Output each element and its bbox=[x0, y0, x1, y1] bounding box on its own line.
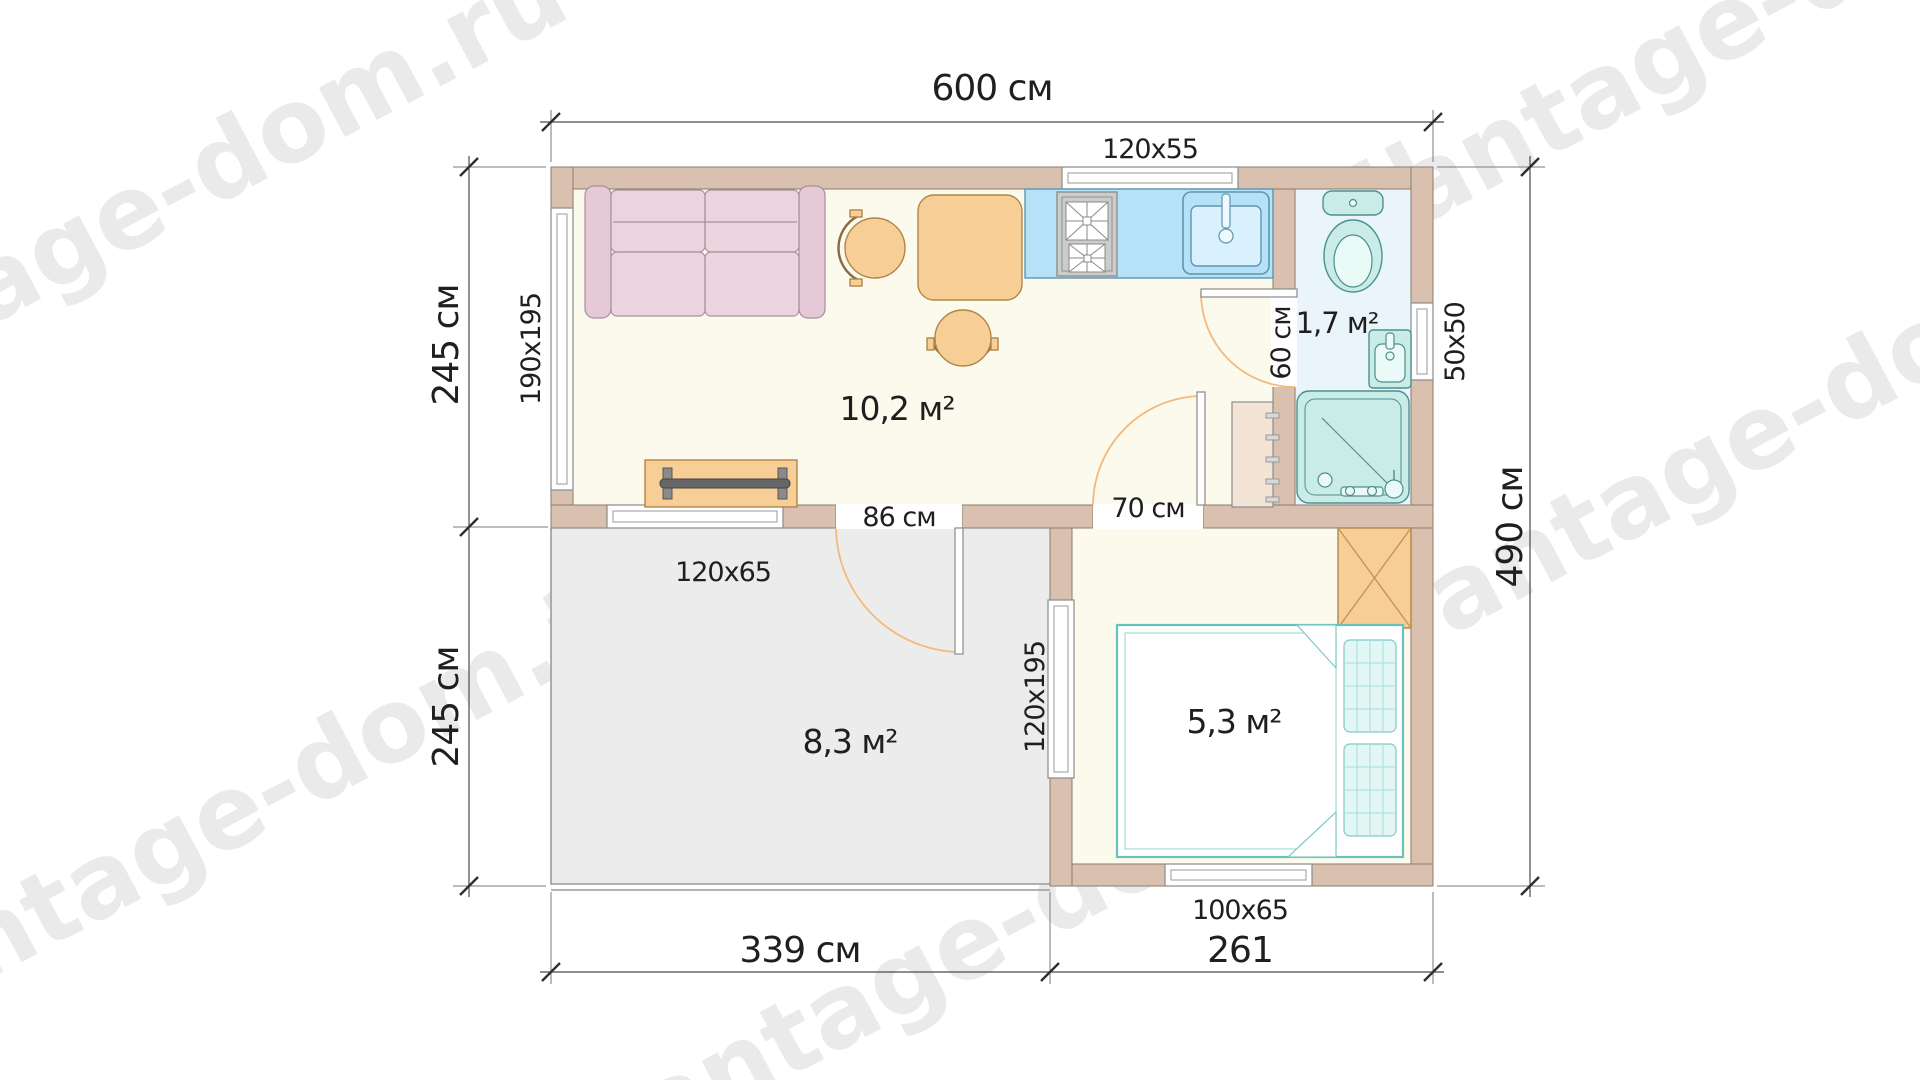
stove bbox=[1057, 192, 1117, 276]
floor-plan-page: avantage-dom.ru avantage-dom.ru avantage… bbox=[0, 0, 1920, 1080]
shower bbox=[1297, 391, 1409, 503]
terrace-floor bbox=[551, 528, 1050, 884]
dim-left-lower: 245 см bbox=[426, 646, 467, 767]
label-bathroom-door: 60 см bbox=[1266, 306, 1297, 379]
label-living-window: 190x195 bbox=[516, 293, 547, 405]
wall-top bbox=[551, 167, 1433, 189]
label-bedroom-door: 70 см bbox=[1111, 493, 1184, 524]
bathroom-door-leaf bbox=[1201, 289, 1297, 297]
dim-bottom-right: 261 bbox=[1207, 930, 1273, 971]
label-bedroom-window: 100x65 bbox=[1192, 895, 1288, 926]
burner-icon bbox=[1066, 202, 1108, 272]
area-terrace: 8,3 м² bbox=[802, 722, 897, 761]
dim-left-upper: 245 см bbox=[426, 284, 467, 405]
label-living-bottom-window: 120x65 bbox=[675, 557, 771, 588]
bench bbox=[645, 460, 797, 507]
label-bathroom-window: 50x50 bbox=[1440, 302, 1471, 382]
dining-table bbox=[918, 195, 1022, 300]
area-bedroom: 5,3 м² bbox=[1186, 702, 1281, 741]
floor-plan-svg: avantage-dom.ru avantage-dom.ru avantage… bbox=[0, 0, 1920, 1080]
terrace-bedroom-door-120x195 bbox=[1048, 600, 1074, 778]
wall-mid-b bbox=[962, 505, 1093, 528]
label-terrace-bedroom-door: 120x195 bbox=[1020, 641, 1051, 753]
dim-bottom-left: 339 см bbox=[739, 930, 860, 971]
kitchen-window-120x55 bbox=[1062, 167, 1238, 189]
living-bottom-window-120x65 bbox=[607, 505, 783, 528]
area-living: 10,2 м² bbox=[839, 389, 954, 428]
bed bbox=[1117, 625, 1403, 857]
wall-mid-c bbox=[1203, 505, 1433, 528]
watermark-text: avantage-dom.ru bbox=[0, 0, 586, 502]
area-bathroom: 1,7 м² bbox=[1296, 306, 1379, 340]
dim-width-top: 600 см bbox=[931, 68, 1052, 109]
living-window-190x195 bbox=[551, 208, 573, 490]
entrance-door-leaf bbox=[955, 528, 963, 654]
bathroom-window-50x50 bbox=[1411, 303, 1433, 380]
toilet bbox=[1323, 191, 1383, 292]
dim-right: 490 см bbox=[1490, 466, 1531, 587]
hall-shelf bbox=[1232, 402, 1279, 507]
kitchen bbox=[1025, 189, 1273, 278]
label-entrance-door: 86 см bbox=[862, 502, 935, 533]
label-kitchen-window: 120x55 bbox=[1102, 134, 1198, 165]
bedroom-window-100x65 bbox=[1165, 864, 1312, 886]
bedroom-door-leaf bbox=[1197, 392, 1205, 505]
wardrobe bbox=[1338, 528, 1411, 628]
